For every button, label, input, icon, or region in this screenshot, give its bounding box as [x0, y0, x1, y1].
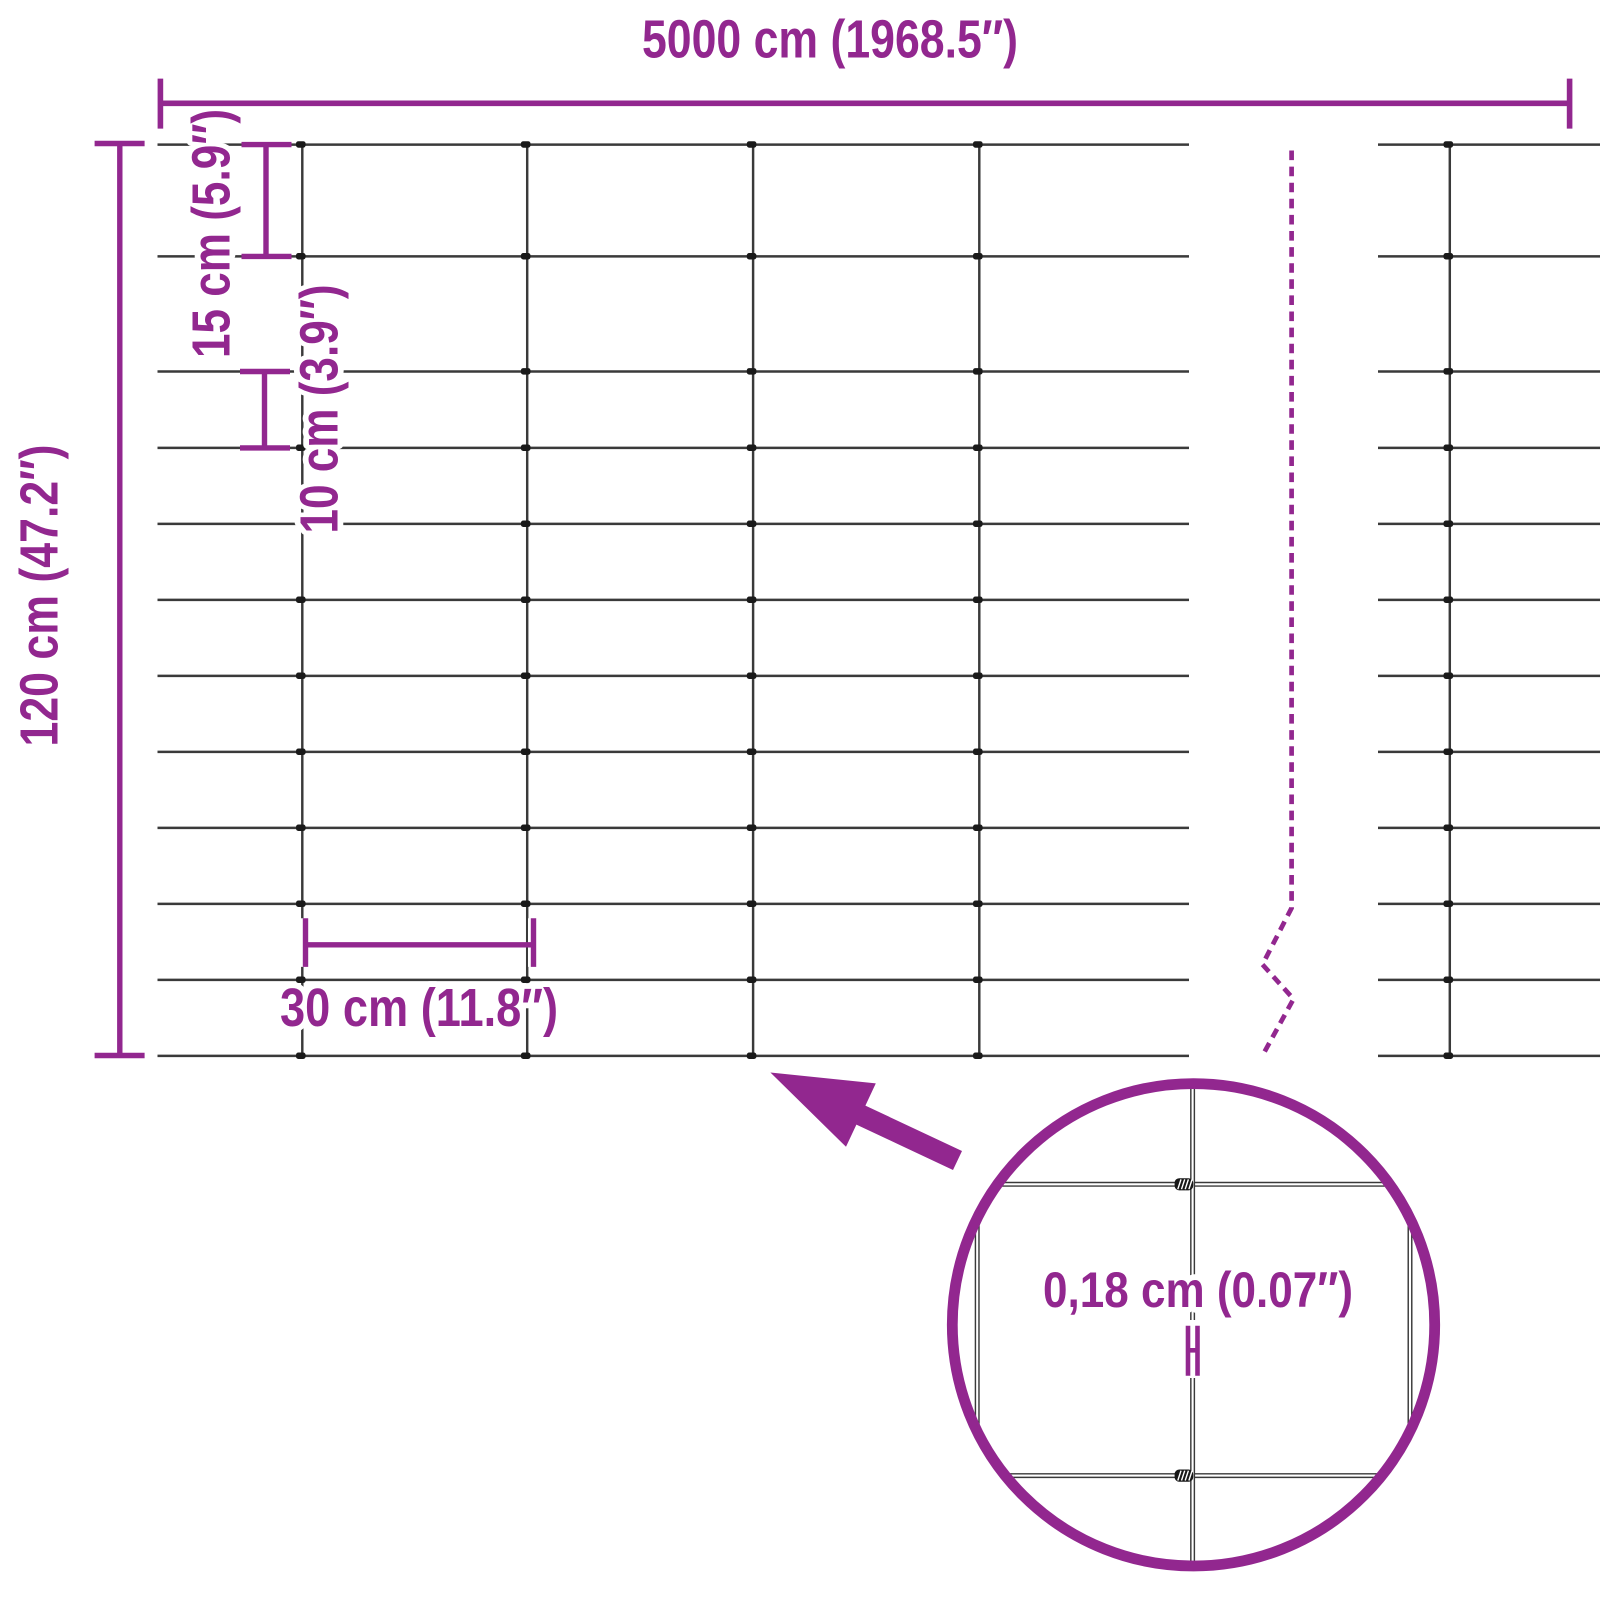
svg-text:5000 cm (1968.5″): 5000 cm (1968.5″) [642, 10, 1018, 70]
svg-text:30 cm (11.8″): 30 cm (11.8″) [280, 978, 558, 1038]
svg-text:15 cm (5.9″): 15 cm (5.9″) [182, 109, 242, 358]
svg-text:0,18 cm (0.07″): 0,18 cm (0.07″) [1043, 1262, 1353, 1318]
svg-text:120 cm (47.2″): 120 cm (47.2″) [10, 445, 70, 747]
svg-text:10 cm (3.9″): 10 cm (3.9″) [290, 285, 350, 534]
